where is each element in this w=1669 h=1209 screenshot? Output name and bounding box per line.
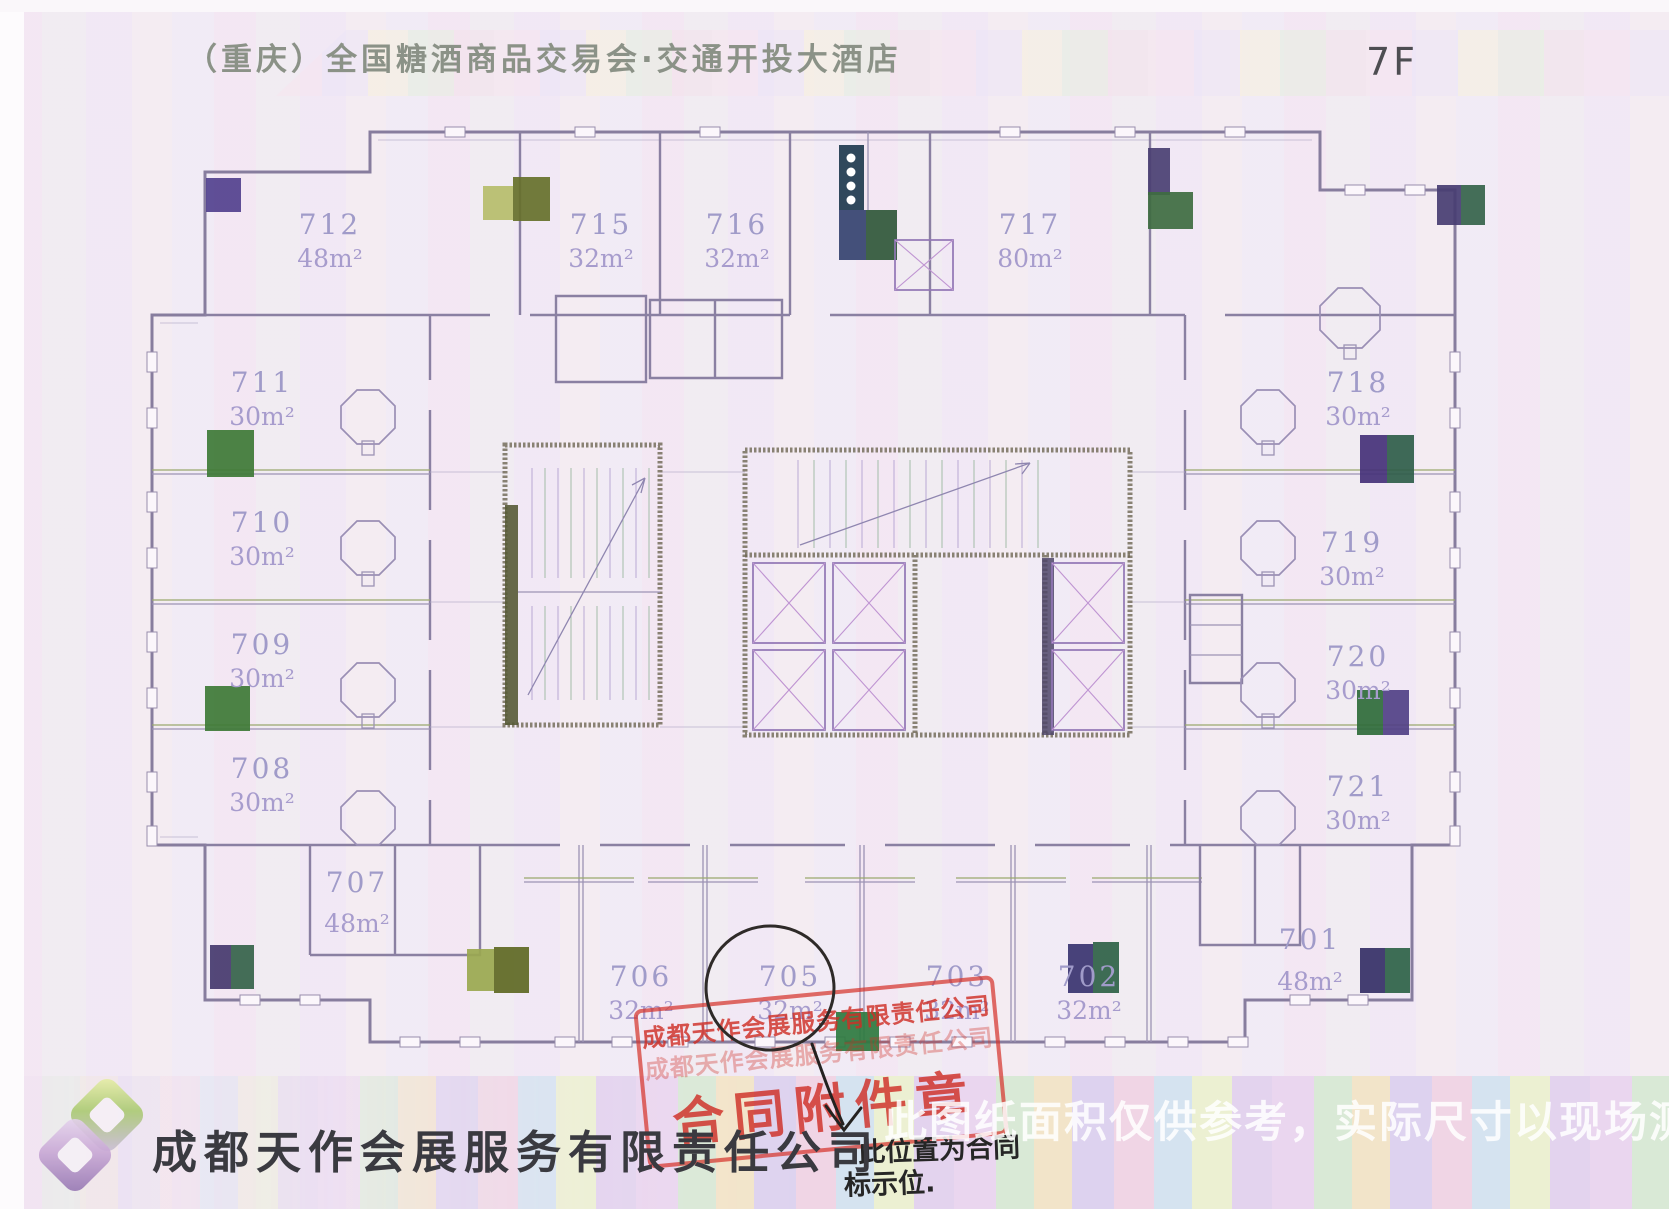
room-number: 718 [1325, 368, 1391, 398]
room-number: 715 [568, 210, 634, 240]
room-area: 30m² [1319, 564, 1385, 590]
room-area: 30m² [1325, 404, 1391, 430]
room-label-702: 70232m² [1056, 962, 1122, 1024]
room-number: 712 [297, 210, 363, 240]
room-area: 48m² [297, 246, 363, 272]
elevator-car [1052, 650, 1124, 730]
room-number: 709 [229, 630, 295, 660]
page-edge-top [0, 0, 1669, 12]
room-area: 30m² [1325, 678, 1391, 704]
room-label-711: 71130m² [229, 368, 295, 430]
room-number: 711 [229, 368, 295, 398]
company-logo-icon [36, 1084, 150, 1198]
room-label-720: 72030m² [1325, 642, 1391, 704]
room-area: 30m² [229, 790, 295, 816]
room-number: 701 [1277, 925, 1343, 955]
room-label-701: 70148m² [1277, 925, 1343, 995]
service-shaft-north [839, 132, 953, 290]
footer-company-name: 成都天作会展服务有限责任公司 [152, 1116, 880, 1181]
room-label-715: 71532m² [568, 210, 634, 272]
room-area: 32m² [568, 246, 634, 272]
room-number: 720 [1325, 642, 1391, 672]
room-label-707: 70748m² [324, 868, 390, 937]
room-number: 706 [608, 962, 674, 992]
room-label-708: 70830m² [229, 754, 295, 816]
room-area: 30m² [229, 666, 295, 692]
room-number: 708 [229, 754, 295, 784]
room-area: 32m² [704, 246, 770, 272]
room-number: 702 [1056, 962, 1122, 992]
room-number: 719 [1319, 528, 1385, 558]
room-number: 716 [704, 210, 770, 240]
room-area: 30m² [229, 544, 295, 570]
elevator-car [753, 563, 825, 643]
room-label-719: 71930m² [1319, 528, 1385, 590]
room-number: 707 [324, 868, 390, 898]
floor-label: 7F [1366, 40, 1418, 84]
room-label-716: 71632m² [704, 210, 770, 272]
room-label-717: 71780m² [997, 210, 1063, 272]
elevator-car [1052, 563, 1124, 643]
room-label-721: 72130m² [1325, 772, 1391, 834]
room-number: 710 [229, 508, 295, 538]
room-area: 32m² [1056, 998, 1122, 1024]
room-label-710: 71030m² [229, 508, 295, 570]
room-number: 717 [997, 210, 1063, 240]
room-area: 48m² [1277, 969, 1343, 995]
bathroom-octagons [341, 288, 1380, 845]
room-area: 80m² [997, 246, 1063, 272]
room-number: 705 [757, 962, 823, 992]
elevator-car [833, 650, 905, 730]
room-area: 48m² [324, 911, 390, 937]
elevator-car [753, 650, 825, 730]
room-number: 721 [1325, 772, 1391, 802]
room-label-712: 71248m² [297, 210, 363, 272]
room-area: 30m² [1325, 808, 1391, 834]
page-edge-left [0, 0, 24, 1209]
room-area: 30m² [229, 404, 295, 430]
reference-disclaimer-watermark: 此图纸面积仅供参考，实际尺寸以现场测量为准 [884, 1088, 1669, 1150]
stairwell-west [505, 445, 660, 725]
room-label-709: 70930m² [229, 630, 295, 692]
scanned-floor-plan-page: （重庆）全国糖酒商品交易会·交通开投大酒店 7F [0, 0, 1669, 1209]
page-title: （重庆）全国糖酒商品交易会·交通开投大酒店 [186, 34, 902, 79]
elevator-core [745, 450, 1130, 735]
room-label-718: 71830m² [1325, 368, 1391, 430]
elevator-car [833, 563, 905, 643]
